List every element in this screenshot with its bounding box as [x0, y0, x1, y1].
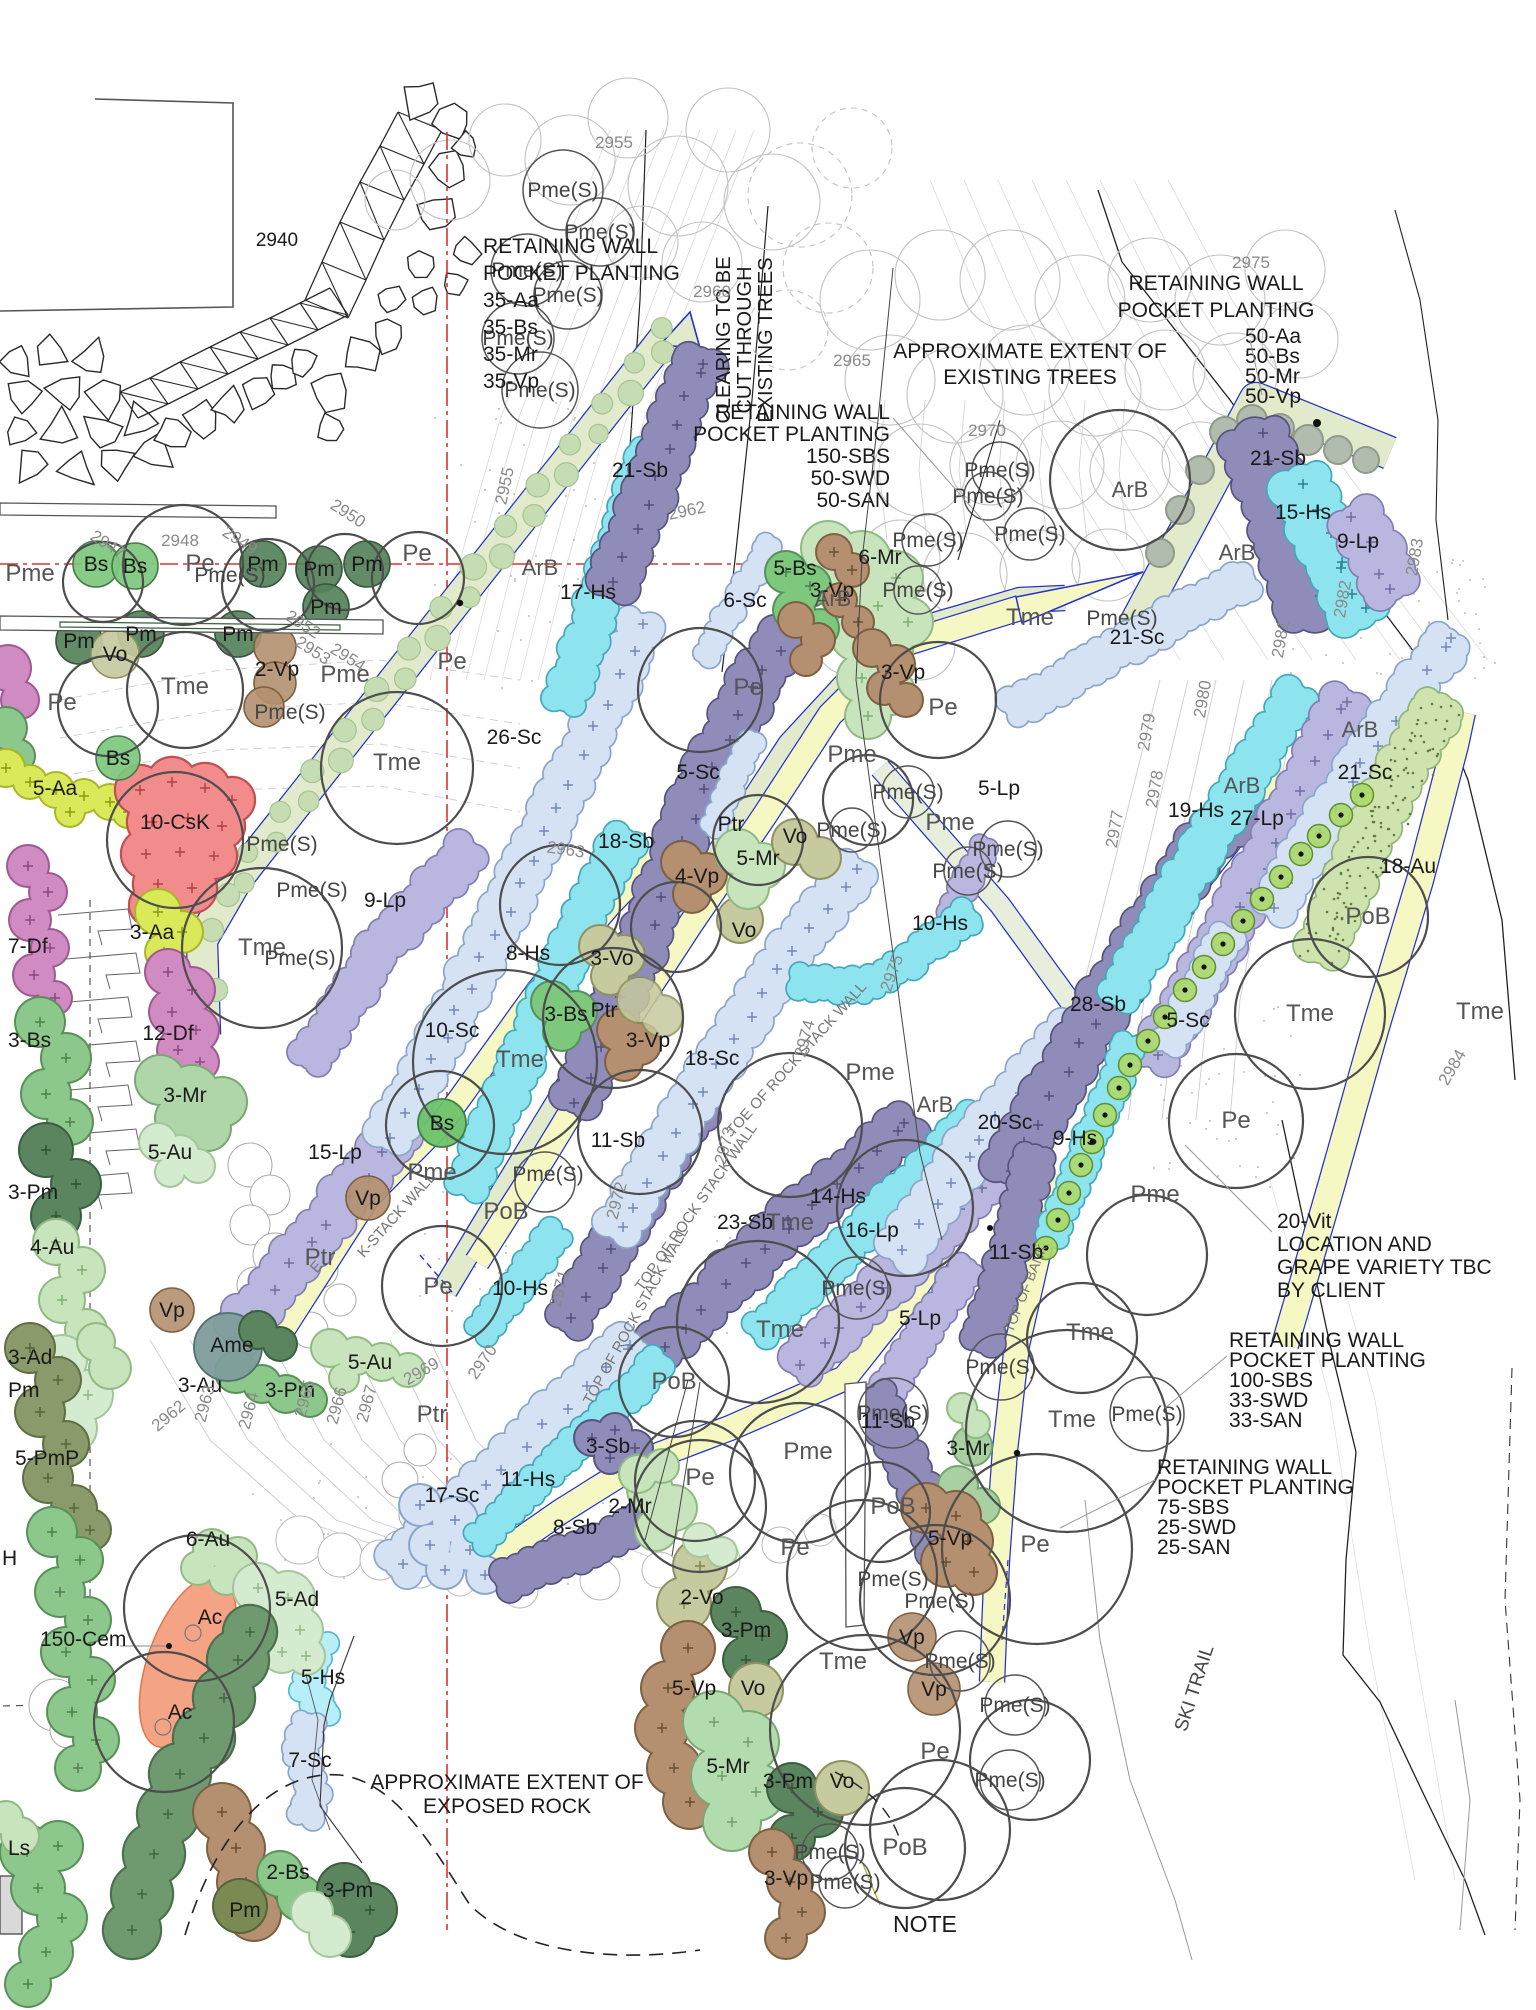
svg-text:9-Lp: 9-Lp: [364, 889, 406, 912]
svg-text:18-Sb: 18-Sb: [598, 830, 654, 853]
svg-text:Tme: Tme: [819, 1648, 867, 1675]
svg-text:4-Vp: 4-Vp: [675, 865, 719, 888]
svg-text:EXISTING TREES: EXISTING TREES: [943, 366, 1117, 389]
svg-text:Pme(S): Pme(S): [264, 947, 335, 970]
svg-text:Vo: Vo: [783, 825, 808, 848]
svg-text:150-SBS: 150-SBS: [806, 445, 890, 468]
svg-text:50-SAN: 50-SAN: [816, 489, 890, 512]
svg-text:50-Vp: 50-Vp: [1245, 385, 1301, 408]
svg-text:5-Lp: 5-Lp: [978, 777, 1020, 800]
svg-text:Pe: Pe: [437, 648, 466, 675]
svg-text:Pme: Pme: [5, 560, 54, 587]
svg-text:Tme: Tme: [1456, 998, 1504, 1025]
svg-text:27-Lp: 27-Lp: [1230, 807, 1284, 830]
svg-text:Tme: Tme: [766, 1209, 814, 1236]
svg-text:Bs: Bs: [123, 555, 148, 578]
svg-text:2965: 2965: [833, 351, 871, 370]
svg-text:PoB: PoB: [870, 1493, 915, 1520]
svg-text:Pme: Pme: [925, 809, 974, 836]
svg-text:Pme(S): Pme(S): [532, 284, 603, 307]
svg-text:2948: 2948: [161, 531, 199, 550]
svg-text:Pme(S): Pme(S): [965, 1356, 1036, 1379]
svg-text:PoB: PoB: [1345, 903, 1390, 930]
svg-text:Pme(S): Pme(S): [882, 579, 953, 602]
svg-text:3-Bs: 3-Bs: [8, 1029, 51, 1052]
svg-text:RETAINING WALL: RETAINING WALL: [1128, 272, 1303, 295]
svg-text:Pme(S): Pme(S): [952, 485, 1023, 508]
svg-text:Pme(S): Pme(S): [857, 1402, 928, 1425]
svg-text:Pe: Pe: [1221, 1107, 1250, 1134]
svg-text:APPROXIMATE EXTENT OF: APPROXIMATE EXTENT OF: [893, 340, 1166, 363]
svg-text:RETAINING WALL: RETAINING WALL: [483, 235, 658, 258]
svg-text:10-Hs: 10-Hs: [492, 1277, 548, 1300]
svg-text:35-Mr: 35-Mr: [483, 343, 538, 366]
svg-text:28-Sb: 28-Sb: [1070, 993, 1126, 1016]
svg-text:Pme(S): Pme(S): [932, 860, 1003, 883]
svg-text:3-Vo: 3-Vo: [590, 947, 633, 970]
svg-text:Vp: Vp: [899, 1626, 925, 1649]
svg-text:Ls: Ls: [8, 1837, 30, 1860]
svg-text:Pme(S): Pme(S): [794, 1841, 865, 1864]
svg-text:Pme(S): Pme(S): [964, 459, 1035, 482]
svg-text:3-Pm: 3-Pm: [323, 1879, 373, 1902]
svg-text:Pm: Pm: [229, 1899, 261, 1922]
svg-text:18-Au: 18-Au: [1380, 855, 1436, 878]
svg-text:3-Sb: 3-Sb: [586, 1435, 630, 1458]
svg-text:5-Vp: 5-Vp: [928, 1527, 972, 1550]
svg-text:Pme(S): Pme(S): [972, 838, 1043, 861]
svg-text:5-Au: 5-Au: [148, 1141, 192, 1164]
svg-text:5-Au: 5-Au: [348, 1351, 392, 1374]
svg-text:15-Lp: 15-Lp: [308, 1141, 362, 1164]
svg-text:3-Mr: 3-Mr: [946, 1437, 989, 1460]
svg-text:Pme(S): Pme(S): [1111, 1403, 1182, 1426]
svg-text:Ptr: Ptr: [591, 999, 618, 1022]
svg-text:3-Pm: 3-Pm: [721, 1619, 771, 1642]
svg-text:Pme(S): Pme(S): [254, 701, 325, 724]
svg-text:Pm: Pm: [303, 558, 335, 581]
svg-text:Pme(S): Pme(S): [512, 1163, 583, 1186]
svg-text:2960: 2960: [693, 282, 731, 301]
svg-text:2975: 2975: [1232, 253, 1270, 272]
svg-text:8-Hs: 8-Hs: [506, 942, 550, 965]
svg-text:2970: 2970: [968, 421, 1006, 440]
svg-text:Pme(S): Pme(S): [194, 564, 265, 587]
svg-text:Pme(S): Pme(S): [821, 1277, 892, 1300]
svg-text:2955: 2955: [595, 133, 633, 152]
svg-text:Pme(S): Pme(S): [892, 529, 963, 552]
svg-text:23-Sb: 23-Sb: [717, 1211, 773, 1234]
svg-text:Vo: Vo: [741, 1677, 766, 1700]
svg-text:3-Vp: 3-Vp: [881, 661, 925, 684]
svg-text:Pe: Pe: [780, 1534, 809, 1561]
svg-text:10-Sc: 10-Sc: [425, 1019, 480, 1042]
svg-text:Tme: Tme: [1048, 1406, 1096, 1433]
svg-text:10-CsK: 10-CsK: [140, 811, 210, 834]
svg-text:Bs: Bs: [106, 747, 131, 770]
svg-text:Vp: Vp: [355, 1187, 381, 1210]
svg-text:3-Mr: 3-Mr: [163, 1084, 206, 1107]
svg-text:2940: 2940: [256, 230, 298, 251]
svg-text:3-Vp: 3-Vp: [626, 1029, 670, 1052]
svg-text:NOTE: NOTE: [893, 1911, 957, 1937]
svg-text:3-Vp: 3-Vp: [764, 1867, 808, 1890]
svg-text:9-Lp: 9-Lp: [1337, 530, 1379, 553]
svg-text:Pme: Pme: [845, 1059, 894, 1086]
svg-text:14-Hs: 14-Hs: [810, 1185, 866, 1208]
svg-text:CUT THROUGH: CUT THROUGH: [734, 266, 756, 413]
svg-text:Pm: Pm: [63, 630, 95, 653]
svg-text:LOCATION AND: LOCATION AND: [1277, 1233, 1432, 1256]
svg-text:Ac: Ac: [198, 1606, 223, 1629]
svg-text:Pe: Pe: [402, 540, 431, 567]
svg-text:35-Vp: 35-Vp: [483, 370, 539, 393]
svg-text:GRAPE VARIETY TBC: GRAPE VARIETY TBC: [1277, 1256, 1492, 1279]
svg-text:EXPOSED ROCK: EXPOSED ROCK: [423, 1795, 591, 1818]
svg-text:Pm: Pm: [222, 623, 254, 646]
svg-text:Pe: Pe: [47, 689, 76, 716]
svg-text:Pme(S): Pme(S): [246, 833, 317, 856]
svg-text:Tme: Tme: [496, 1046, 544, 1073]
svg-text:26-Sc: 26-Sc: [487, 726, 542, 749]
svg-text:Pe: Pe: [920, 1738, 949, 1765]
svg-text:Ac: Ac: [168, 1701, 193, 1724]
svg-text:PoB: PoB: [483, 1198, 528, 1225]
svg-text:Vp: Vp: [159, 1299, 185, 1322]
svg-text:ArB: ArB: [917, 1092, 954, 1117]
svg-text:Tme: Tme: [161, 673, 209, 700]
svg-text:5-Ad: 5-Ad: [275, 1588, 319, 1611]
svg-text:Tme: Tme: [1006, 604, 1054, 631]
svg-text:21-Sb: 21-Sb: [612, 459, 668, 482]
svg-text:3-Aa: 3-Aa: [130, 921, 175, 944]
svg-text:6-Sc: 6-Sc: [723, 589, 766, 612]
svg-text:3-Bs: 3-Bs: [544, 1003, 587, 1026]
svg-text:Pe: Pe: [685, 1464, 714, 1491]
svg-text:Pe: Pe: [733, 674, 762, 701]
svg-text:11-Sb: 11-Sb: [989, 1241, 1043, 1264]
svg-text:12-Df: 12-Df: [142, 1022, 194, 1045]
svg-text:Tme: Tme: [756, 1316, 804, 1343]
svg-text:3-Pm: 3-Pm: [8, 1181, 58, 1204]
svg-text:Pme(S): Pme(S): [974, 1769, 1045, 1792]
svg-text:Pme(S): Pme(S): [872, 781, 943, 804]
svg-text:10-Hs: 10-Hs: [912, 912, 968, 935]
svg-text:POCKET PLANTING: POCKET PLANTING: [483, 262, 680, 285]
svg-text:Pe: Pe: [928, 694, 957, 721]
svg-text:Pme(S): Pme(S): [527, 179, 598, 202]
svg-text:150-Cem: 150-Cem: [40, 1628, 126, 1651]
svg-text:Pm: Pm: [8, 1379, 40, 1402]
svg-text:Ptr: Ptr: [718, 813, 745, 836]
svg-text:7-Df: 7-Df: [8, 935, 48, 958]
svg-text:Tme: Tme: [1066, 1319, 1114, 1346]
svg-text:Bs: Bs: [430, 1112, 455, 1135]
svg-text:11-Sb: 11-Sb: [591, 1129, 645, 1152]
svg-text:21-Sb: 21-Sb: [1250, 447, 1306, 470]
svg-text:Ptr: Ptr: [305, 1244, 336, 1271]
svg-text:5-Sc: 5-Sc: [676, 761, 719, 784]
svg-text:Pme(S): Pme(S): [1086, 607, 1157, 630]
svg-text:35-Aa: 35-Aa: [483, 289, 539, 312]
svg-text:21-Sc: 21-Sc: [1338, 761, 1393, 784]
svg-text:4-Au: 4-Au: [30, 1236, 74, 1259]
svg-text:20-Vit: 20-Vit: [1277, 1210, 1332, 1233]
svg-text:2-Bs: 2-Bs: [266, 1861, 309, 1884]
svg-text:Pm: Pm: [310, 596, 342, 619]
svg-text:5-Hs: 5-Hs: [301, 1666, 345, 1689]
svg-text:Pme: Pme: [783, 1438, 832, 1465]
svg-text:5-Mr: 5-Mr: [706, 1755, 749, 1778]
svg-text:15-Hs: 15-Hs: [1275, 501, 1331, 524]
svg-text:5-Bs: 5-Bs: [773, 557, 816, 580]
svg-text:EXISTING TREES: EXISTING TREES: [755, 257, 777, 422]
svg-text:POCKET PLANTING: POCKET PLANTING: [693, 423, 890, 446]
svg-text:9-Hs: 9-Hs: [1053, 1127, 1097, 1150]
svg-text:Pme(S): Pme(S): [857, 1568, 928, 1591]
svg-text:ArB: ArB: [1112, 477, 1149, 502]
svg-text:Bs: Bs: [84, 553, 109, 576]
svg-text:Ptr: Ptr: [417, 1401, 448, 1428]
svg-text:Vo: Vo: [103, 643, 128, 666]
svg-text:Pme: Pme: [827, 741, 876, 768]
svg-text:H: H: [2, 1547, 17, 1570]
svg-text:Pe: Pe: [1020, 1531, 1049, 1558]
svg-text:20-Sc: 20-Sc: [978, 1111, 1033, 1134]
svg-text:Pm: Pm: [125, 623, 157, 646]
svg-text:5-Mr: 5-Mr: [736, 847, 779, 870]
svg-text:Vp: Vp: [921, 1678, 947, 1701]
svg-text:Pme(S): Pme(S): [904, 1590, 975, 1613]
svg-text:PoB: PoB: [882, 1834, 927, 1861]
svg-text:Pe: Pe: [423, 1273, 452, 1300]
svg-text:19-Hs: 19-Hs: [1168, 799, 1224, 822]
svg-text:Pme(S): Pme(S): [924, 1650, 995, 1673]
svg-text:18-Sc: 18-Sc: [685, 1047, 740, 1070]
svg-text:PoB: PoB: [651, 1368, 696, 1395]
svg-text:POCKET PLANTING: POCKET PLANTING: [1118, 299, 1315, 322]
svg-text:ArB: ArB: [1224, 773, 1261, 798]
svg-text:Pme(S): Pme(S): [276, 879, 347, 902]
svg-text:ArB: ArB: [1342, 717, 1379, 742]
svg-text:Pme(S): Pme(S): [979, 1694, 1050, 1717]
svg-text:Pm: Pm: [351, 553, 383, 576]
svg-text:Pme: Pme: [407, 1159, 456, 1186]
svg-text:BY CLIENT: BY CLIENT: [1277, 1279, 1385, 1302]
svg-text:5-Sc: 5-Sc: [1166, 1009, 1209, 1032]
svg-text:5-Lp: 5-Lp: [899, 1307, 941, 1330]
svg-text:11-Hs: 11-Hs: [501, 1468, 555, 1491]
svg-text:16-Lp: 16-Lp: [845, 1219, 899, 1242]
svg-text:APPROXIMATE EXTENT OF: APPROXIMATE EXTENT OF: [370, 1771, 643, 1794]
svg-text:5-Vp: 5-Vp: [672, 1677, 716, 1700]
svg-text:3-Ad: 3-Ad: [8, 1346, 52, 1369]
svg-text:2-Vp: 2-Vp: [255, 658, 299, 681]
svg-text:8-Sb: 8-Sb: [553, 1516, 597, 1539]
svg-text:2-Mr: 2-Mr: [608, 1495, 651, 1518]
svg-text:ArB: ArB: [815, 586, 852, 611]
svg-text:Ame: Ame: [210, 1334, 253, 1357]
svg-text:50-SWD: 50-SWD: [811, 467, 890, 490]
svg-text:17-Hs: 17-Hs: [560, 581, 616, 604]
svg-text:3-Pm: 3-Pm: [763, 1770, 813, 1793]
svg-text:Pme(S): Pme(S): [816, 819, 887, 842]
svg-text:2-Vo: 2-Vo: [680, 1586, 723, 1609]
svg-text:ArB: ArB: [522, 555, 559, 580]
svg-text:Vo: Vo: [830, 1770, 855, 1793]
svg-text:Pme(S): Pme(S): [809, 1871, 880, 1894]
svg-text:ArB: ArB: [1219, 540, 1256, 565]
svg-text:7-Sc: 7-Sc: [288, 1749, 331, 1772]
svg-text:17-Sc: 17-Sc: [425, 1484, 480, 1507]
svg-text:6-Au: 6-Au: [186, 1528, 230, 1551]
svg-text:5-PmP: 5-PmP: [15, 1447, 79, 1470]
svg-text:Pme(S): Pme(S): [994, 523, 1065, 546]
svg-text:Tme: Tme: [373, 749, 421, 776]
svg-text:35-Bs: 35-Bs: [483, 316, 538, 339]
svg-text:25-SAN: 25-SAN: [1157, 1536, 1231, 1559]
svg-text:5-Aa: 5-Aa: [33, 777, 78, 800]
svg-text:33-SAN: 33-SAN: [1229, 1409, 1303, 1432]
svg-text:Tme: Tme: [1286, 1000, 1334, 1027]
svg-text:Pme: Pme: [1130, 1181, 1179, 1208]
svg-text:Vo: Vo: [732, 919, 757, 942]
